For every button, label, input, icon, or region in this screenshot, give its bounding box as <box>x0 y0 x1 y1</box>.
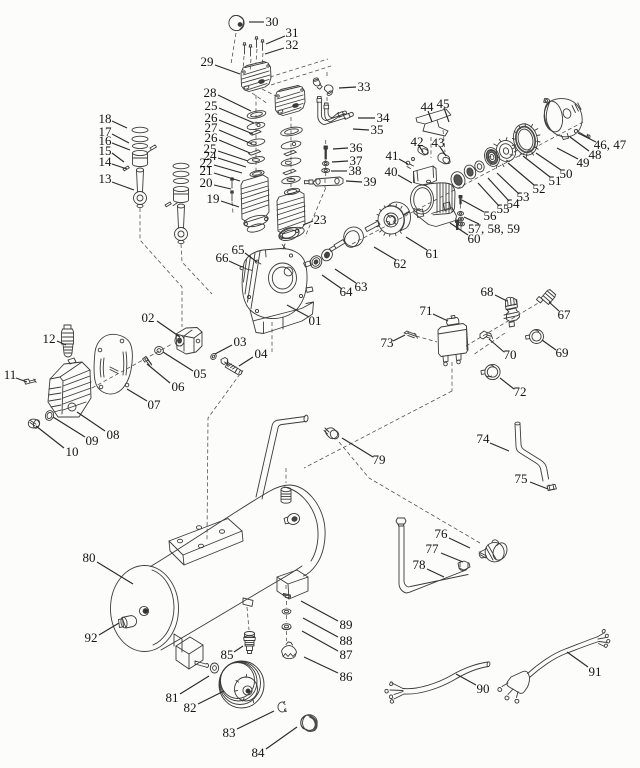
svg-text:86: 86 <box>340 669 354 684</box>
svg-text:06: 06 <box>172 379 186 394</box>
svg-text:33: 33 <box>358 79 371 94</box>
svg-text:52: 52 <box>533 181 546 196</box>
svg-text:19: 19 <box>207 191 220 206</box>
svg-text:08: 08 <box>107 427 120 442</box>
svg-text:05: 05 <box>194 366 207 381</box>
svg-text:92: 92 <box>85 630 98 645</box>
svg-text:45: 45 <box>437 96 450 111</box>
svg-text:44: 44 <box>421 99 435 114</box>
svg-text:55: 55 <box>497 201 510 216</box>
svg-text:39: 39 <box>364 174 377 189</box>
svg-text:11: 11 <box>4 367 17 382</box>
svg-text:71: 71 <box>420 303 433 318</box>
svg-text:38: 38 <box>349 163 362 178</box>
svg-text:68: 68 <box>481 284 494 299</box>
svg-text:83: 83 <box>223 725 236 740</box>
svg-text:12: 12 <box>43 331 56 346</box>
svg-text:74: 74 <box>477 431 491 446</box>
svg-text:81: 81 <box>166 690 179 705</box>
svg-text:66: 66 <box>216 250 230 265</box>
svg-text:17: 17 <box>99 124 113 139</box>
svg-text:88: 88 <box>340 633 353 648</box>
svg-text:73: 73 <box>381 335 394 350</box>
svg-text:62: 62 <box>394 256 407 271</box>
svg-text:70: 70 <box>504 347 517 362</box>
svg-text:91: 91 <box>589 664 602 679</box>
svg-text:75: 75 <box>515 471 528 486</box>
svg-text:03: 03 <box>234 334 247 349</box>
svg-text:63: 63 <box>355 279 368 294</box>
svg-text:85: 85 <box>221 647 234 662</box>
svg-text:72: 72 <box>514 384 527 399</box>
svg-text:07: 07 <box>148 397 162 412</box>
svg-text:41: 41 <box>386 148 399 163</box>
svg-text:42: 42 <box>411 134 424 149</box>
svg-text:67: 67 <box>558 307 572 322</box>
svg-text:40: 40 <box>385 164 398 179</box>
svg-text:48: 48 <box>589 147 602 162</box>
svg-text:60: 60 <box>468 231 481 246</box>
svg-text:61: 61 <box>426 246 439 261</box>
svg-text:02: 02 <box>142 310 155 325</box>
svg-text:13: 13 <box>99 171 112 186</box>
svg-text:77: 77 <box>426 541 440 556</box>
svg-text:80: 80 <box>83 550 96 565</box>
svg-text:43: 43 <box>432 135 445 150</box>
svg-text:01: 01 <box>309 313 322 328</box>
svg-text:32: 32 <box>286 37 299 52</box>
svg-text:65: 65 <box>232 242 245 257</box>
svg-text:25: 25 <box>205 98 218 113</box>
svg-text:79: 79 <box>373 452 386 467</box>
svg-text:89: 89 <box>340 617 353 632</box>
svg-text:09: 09 <box>86 433 99 448</box>
svg-text:69: 69 <box>556 345 569 360</box>
svg-text:23: 23 <box>314 212 327 227</box>
svg-text:30: 30 <box>266 14 279 29</box>
svg-text:04: 04 <box>255 346 269 361</box>
svg-text:82: 82 <box>184 700 197 715</box>
svg-text:29: 29 <box>201 54 214 69</box>
svg-text:64: 64 <box>340 284 354 299</box>
svg-text:10: 10 <box>66 444 79 459</box>
svg-text:51: 51 <box>549 173 562 188</box>
svg-text:87: 87 <box>340 647 354 662</box>
svg-text:18: 18 <box>99 111 112 126</box>
svg-text:35: 35 <box>371 122 384 137</box>
svg-text:84: 84 <box>252 745 266 760</box>
svg-text:49: 49 <box>577 155 590 170</box>
svg-text:28: 28 <box>204 85 217 100</box>
svg-text:78: 78 <box>413 557 426 572</box>
svg-text:76: 76 <box>435 526 449 541</box>
svg-text:90: 90 <box>477 681 490 696</box>
